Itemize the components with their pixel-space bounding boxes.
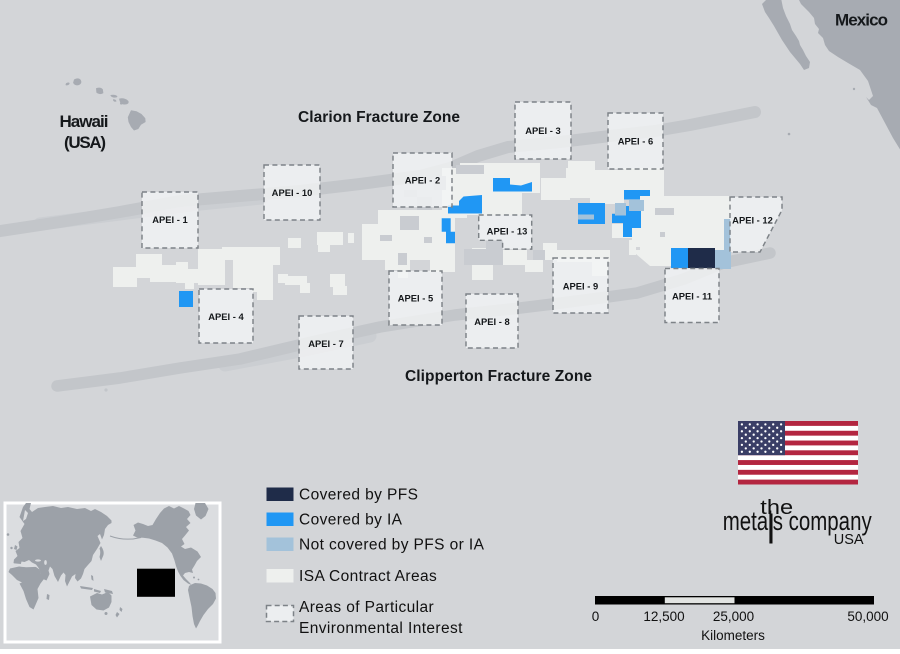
svg-text:APEI - 6: APEI - 6	[618, 136, 653, 147]
svg-text:Kilometers: Kilometers	[701, 628, 765, 643]
svg-text:APEI - 5: APEI - 5	[398, 293, 433, 304]
svg-text:APEI - 3: APEI - 3	[525, 125, 560, 136]
svg-text:50,000: 50,000	[847, 609, 888, 624]
svg-text:APEI - 7: APEI - 7	[308, 338, 343, 349]
svg-text:(USA): (USA)	[64, 133, 106, 152]
svg-text:Environmental Interest: Environmental Interest	[299, 620, 463, 637]
svg-text:Covered by IA: Covered by IA	[299, 512, 403, 529]
svg-text:APEI - 13: APEI - 13	[487, 226, 528, 237]
svg-text:ISA Contract Areas: ISA Contract Areas	[299, 568, 437, 585]
svg-text:APEI - 8: APEI - 8	[474, 316, 509, 327]
svg-text:Hawaii: Hawaii	[60, 112, 109, 131]
svg-text:APEI - 1: APEI - 1	[152, 214, 187, 225]
svg-text:25,000: 25,000	[713, 609, 754, 624]
svg-text:APEI - 2: APEI - 2	[405, 175, 440, 186]
svg-text:USA: USA	[834, 532, 864, 548]
svg-text:Mexico: Mexico	[835, 11, 888, 30]
svg-text:Areas of Particular: Areas of Particular	[299, 599, 434, 616]
svg-text:Clipperton Fracture Zone: Clipperton Fracture Zone	[405, 368, 592, 385]
svg-text:Covered by PFS: Covered by PFS	[299, 487, 418, 504]
svg-text:Not covered by PFS or IA: Not covered by PFS or IA	[299, 537, 485, 554]
svg-text:0: 0	[592, 609, 600, 624]
svg-text:APEI - 9: APEI - 9	[563, 281, 598, 292]
svg-text:APEI - 4: APEI - 4	[208, 311, 244, 322]
svg-text:Clarion Fracture Zone: Clarion Fracture Zone	[298, 109, 460, 126]
svg-text:APEI - 10: APEI - 10	[272, 187, 313, 198]
svg-text:APEI - 11: APEI - 11	[672, 291, 712, 302]
svg-text:12,500: 12,500	[643, 609, 684, 624]
svg-text:APEI - 12: APEI - 12	[732, 215, 773, 226]
